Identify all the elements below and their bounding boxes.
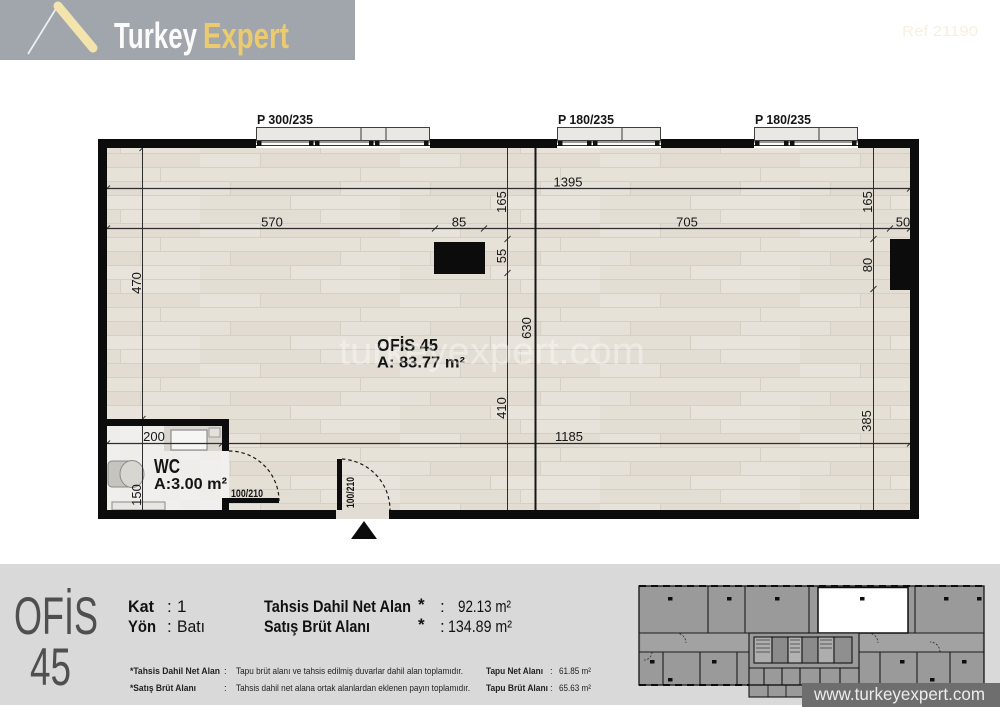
svg-text:200: 200 (143, 429, 165, 444)
svg-text:50: 50 (896, 215, 910, 230)
svg-text:Satış Brüt Alanı: Satış Brüt Alanı (264, 617, 370, 636)
svg-text::: : (224, 683, 227, 694)
svg-text:570: 570 (261, 215, 283, 230)
svg-text:*: * (418, 615, 425, 634)
svg-text:Yön: Yön (128, 617, 156, 636)
svg-text::: : (550, 666, 553, 677)
svg-text:www.turkeyexpert.com: www.turkeyexpert.com (813, 684, 985, 704)
svg-text:*Satış Brüt Alanı: *Satış Brüt Alanı (130, 683, 196, 694)
svg-text:470: 470 (129, 272, 144, 294)
svg-text:165: 165 (860, 191, 875, 213)
svg-text::: : (440, 597, 445, 616)
svg-text:P 300/235: P 300/235 (257, 113, 313, 127)
svg-text:Turkey: Turkey (114, 15, 197, 56)
svg-text:100/210: 100/210 (345, 477, 357, 508)
svg-text:Tahsis dahil net alana ortak a: Tahsis dahil net alana ortak alanlardan … (236, 683, 470, 694)
svg-text:Kat: Kat (128, 597, 154, 616)
svg-text:Tapu Brüt Alanı: Tapu Brüt Alanı (486, 683, 548, 694)
svg-text:55: 55 (494, 249, 509, 263)
svg-text:134.89 m²: 134.89 m² (448, 617, 512, 636)
svg-text:85: 85 (452, 215, 466, 230)
svg-text:80: 80 (860, 258, 875, 272)
svg-text:1395: 1395 (554, 175, 583, 190)
svg-text:turkeyexpert.com: turkeyexpert.com (339, 331, 645, 373)
svg-text::: : (167, 597, 172, 616)
svg-text:Tapu Net Alanı: Tapu Net Alanı (486, 666, 543, 677)
svg-text:92.13 m²: 92.13 m² (458, 597, 511, 616)
svg-text:150: 150 (129, 484, 144, 506)
svg-text:385: 385 (859, 410, 874, 432)
svg-text::: : (550, 683, 553, 694)
svg-text:1: 1 (177, 597, 186, 616)
svg-text:Ref 21190: Ref 21190 (902, 23, 978, 40)
svg-text:*Tahsis Dahil Net Alan: *Tahsis Dahil Net Alan (130, 666, 220, 677)
svg-text:Tahsis Dahil Net Alan: Tahsis Dahil Net Alan (264, 597, 411, 616)
svg-text:Tapu brüt alanı ve tahsis edil: Tapu brüt alanı ve tahsis edilmiş duvarl… (236, 666, 463, 677)
svg-text:100/210: 100/210 (231, 488, 263, 500)
svg-text:A:3.00 m²: A:3.00 m² (154, 476, 227, 493)
svg-text:705: 705 (676, 215, 698, 230)
svg-text:P 180/235: P 180/235 (558, 113, 614, 127)
svg-text:P 180/235: P 180/235 (755, 113, 811, 127)
svg-text:165: 165 (494, 191, 509, 213)
svg-text:410: 410 (494, 397, 509, 419)
svg-text::: : (224, 666, 227, 677)
svg-text:Expert: Expert (203, 15, 289, 56)
svg-text:Batı: Batı (177, 617, 205, 636)
svg-text:45: 45 (30, 638, 71, 697)
svg-text:*: * (418, 595, 425, 614)
svg-text:61.85 m²: 61.85 m² (559, 666, 591, 677)
svg-text::: : (440, 617, 445, 636)
svg-text:65.63 m²: 65.63 m² (559, 683, 591, 694)
svg-text:1185: 1185 (555, 429, 583, 444)
svg-text::: : (167, 617, 172, 636)
svg-text:WC: WC (154, 456, 180, 478)
